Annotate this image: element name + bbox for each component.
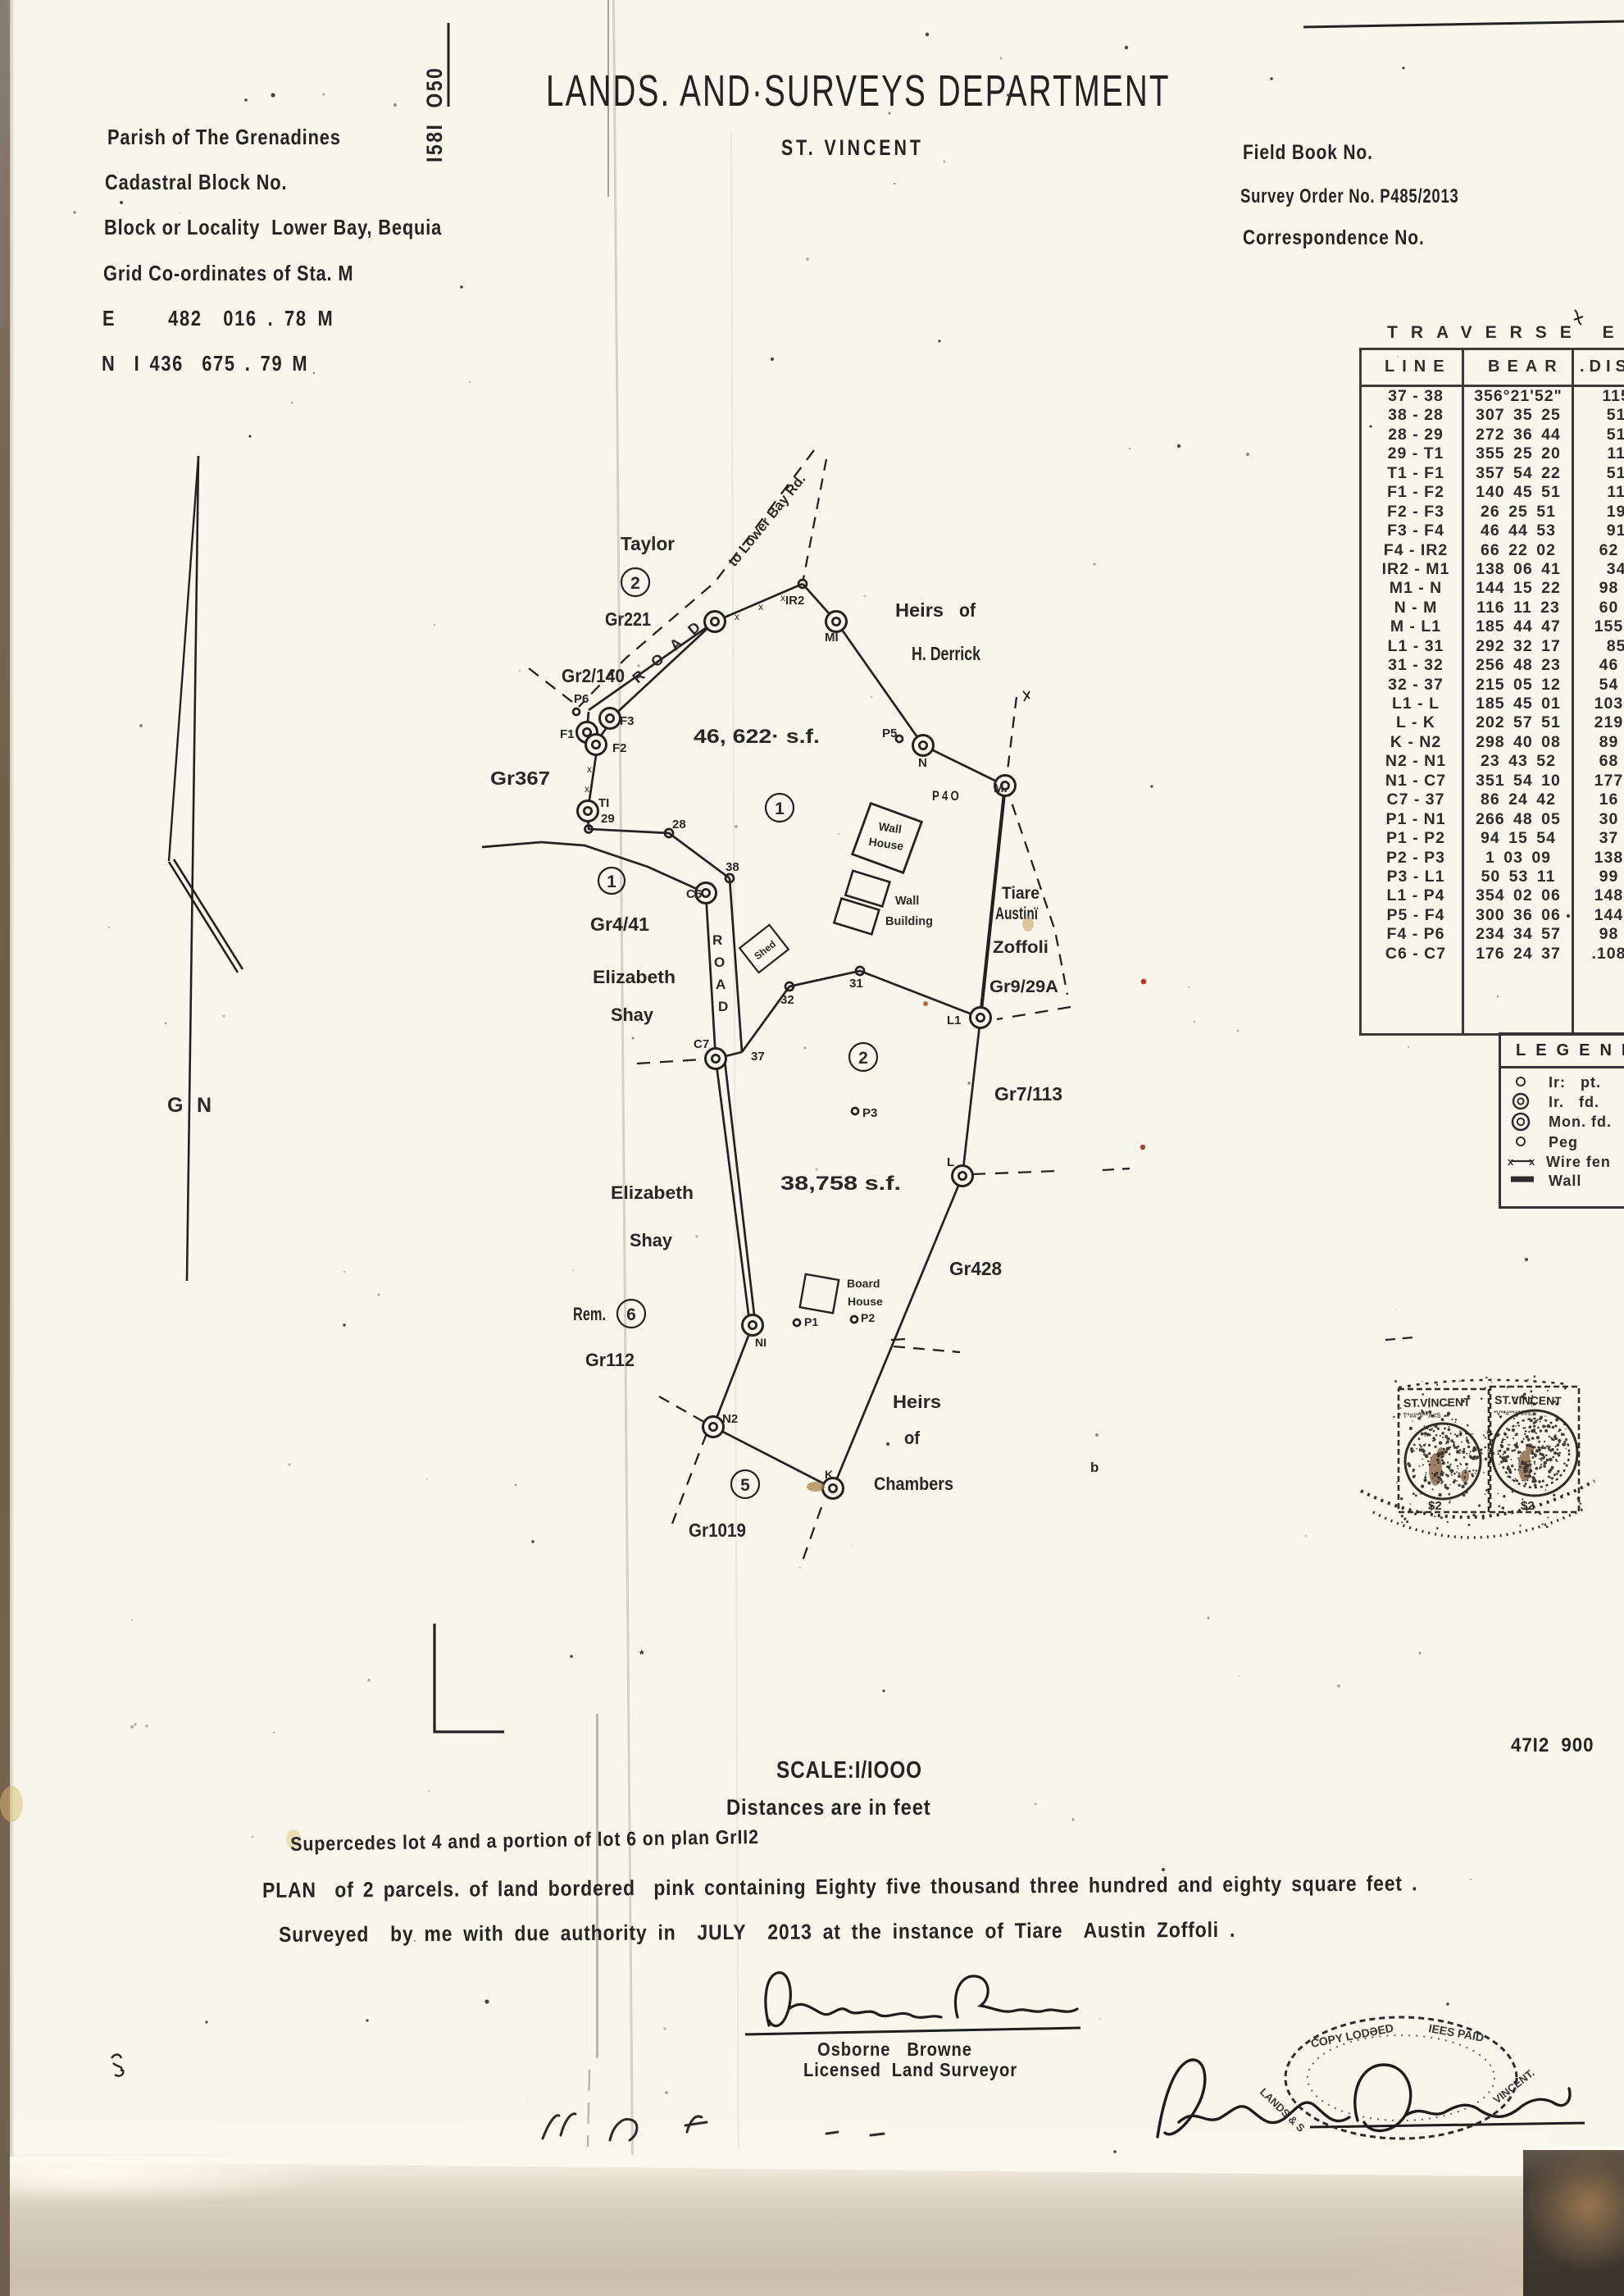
svg-text:$2: $2 — [1521, 1499, 1535, 1513]
svg-text:29: 29 — [601, 812, 615, 826]
svg-text:House: House — [848, 1295, 883, 1308]
svg-text:N: N — [197, 1094, 212, 1117]
svg-text:C6: C6 — [686, 887, 702, 901]
svg-text:Gr221: Gr221 — [605, 608, 651, 630]
svg-text:Building: Building — [885, 915, 933, 928]
svg-text:31: 31 — [849, 977, 863, 991]
svg-text:37: 37 — [751, 1050, 765, 1064]
svg-text:M.: M. — [994, 781, 1008, 795]
svg-text:of: of — [904, 1428, 921, 1448]
svg-text:x: x — [587, 763, 592, 775]
svg-text:x: x — [585, 783, 589, 795]
svg-text:H. Derrick: H. Derrick — [912, 643, 980, 664]
svg-text:38,758 s.f.: 38,758 s.f. — [780, 1173, 901, 1195]
svg-text:K: K — [825, 1468, 833, 1481]
svg-text:2: 2 — [858, 1049, 868, 1068]
svg-text:x: x — [735, 611, 739, 622]
svg-text:NI: NI — [755, 1336, 767, 1349]
svg-text:F1: F1 — [560, 727, 575, 741]
svg-text:Gr428: Gr428 — [949, 1258, 1002, 1279]
svg-text:Chambers: Chambers — [874, 1474, 953, 1494]
svg-text:Gr367: Gr367 — [490, 768, 550, 789]
svg-text:P3: P3 — [862, 1106, 877, 1120]
svg-text:x: x — [758, 601, 763, 613]
svg-text:L: L — [947, 1155, 954, 1169]
svg-text:House: House — [868, 835, 905, 853]
svg-text:Heirs: Heirs — [893, 1392, 941, 1412]
svg-text:ІEES PAID: ІEES PAID — [1427, 2021, 1485, 2044]
svg-text:F2: F2 — [612, 741, 627, 755]
svg-text:ST.VINCENT: ST.VINCENT — [1403, 1396, 1471, 1410]
svg-text:LANDS & S: LANDS & S — [1258, 2085, 1308, 2134]
svg-text:N2: N2 — [722, 1412, 738, 1426]
svg-text:38: 38 — [726, 860, 739, 874]
svg-text:COPY LODƏED: COPY LODƏED — [1310, 2021, 1395, 2050]
svg-text:Gr9/29A: Gr9/29A — [989, 977, 1058, 996]
svg-text:R: R — [712, 932, 722, 948]
svg-text:Board: Board — [847, 1277, 880, 1290]
svg-text:Gr2/140: Gr2/140 — [562, 665, 625, 686]
svg-text:Shay: Shay — [630, 1230, 673, 1250]
svg-text:O: O — [714, 954, 725, 970]
svg-text:6: 6 — [626, 1305, 636, 1324]
svg-text:Shay: Shay — [611, 1004, 654, 1025]
svg-text:C7: C7 — [694, 1037, 709, 1051]
svg-text:1: 1 — [607, 872, 616, 891]
svg-text:P5: P5 — [882, 727, 897, 740]
svg-text:F3: F3 — [620, 714, 635, 728]
svg-text:L1: L1 — [947, 1014, 962, 1027]
svg-text:TI: TI — [598, 796, 609, 810]
svg-text:Gr4/41: Gr4/41 — [590, 913, 649, 935]
svg-text:MI: MI — [825, 631, 839, 645]
svg-text:Heirs: Heirs — [895, 599, 944, 621]
svg-text:Wall: Wall — [895, 895, 919, 908]
svg-text:G: G — [167, 1094, 183, 1117]
svg-text:Elizabeth: Elizabeth — [611, 1182, 694, 1203]
svg-text:P4O: P4O — [932, 788, 962, 804]
svg-text:Wall: Wall — [878, 820, 903, 836]
svg-text:P2: P2 — [861, 1311, 875, 1324]
svg-text:Zoffoli: Zoffoli — [993, 938, 1049, 957]
svg-text:Shed: Shed — [752, 938, 778, 962]
svg-text:b: b — [1090, 1460, 1099, 1475]
svg-text:Gr112: Gr112 — [585, 1350, 635, 1370]
svg-text:IR2: IR2 — [785, 594, 804, 608]
svg-text:*: * — [639, 1647, 644, 1660]
svg-text:32: 32 — [780, 993, 794, 1007]
svg-text:D: D — [718, 999, 728, 1014]
svg-text:Gr1019: Gr1019 — [689, 1519, 746, 1541]
svg-text:Tiare: Tiare — [1002, 884, 1039, 903]
svg-text:5: 5 — [740, 1476, 750, 1495]
svg-text:ST.VINCENT: ST.VINCENT — [1494, 1393, 1562, 1407]
svg-text:46, 622· s.f.: 46, 622· s.f. — [694, 726, 820, 748]
svg-text:N: N — [918, 756, 927, 770]
svg-text:2: 2 — [630, 574, 640, 593]
svg-text:Taylor: Taylor — [621, 533, 675, 554]
svg-text:to Lower Bay Rd.: to Lower Bay Rd. — [725, 471, 808, 570]
svg-text:P6: P6 — [574, 692, 589, 706]
svg-text:Rem.: Rem. — [573, 1304, 606, 1324]
svg-text:Elizabeth: Elizabeth — [593, 967, 676, 987]
svg-text:A: A — [716, 977, 726, 992]
svg-text:Gr7/113: Gr7/113 — [994, 1083, 1062, 1105]
svg-text:of: of — [959, 599, 976, 621]
svg-text:P1: P1 — [804, 1315, 818, 1328]
svg-text:1: 1 — [775, 799, 785, 818]
svg-text:28: 28 — [672, 818, 686, 831]
